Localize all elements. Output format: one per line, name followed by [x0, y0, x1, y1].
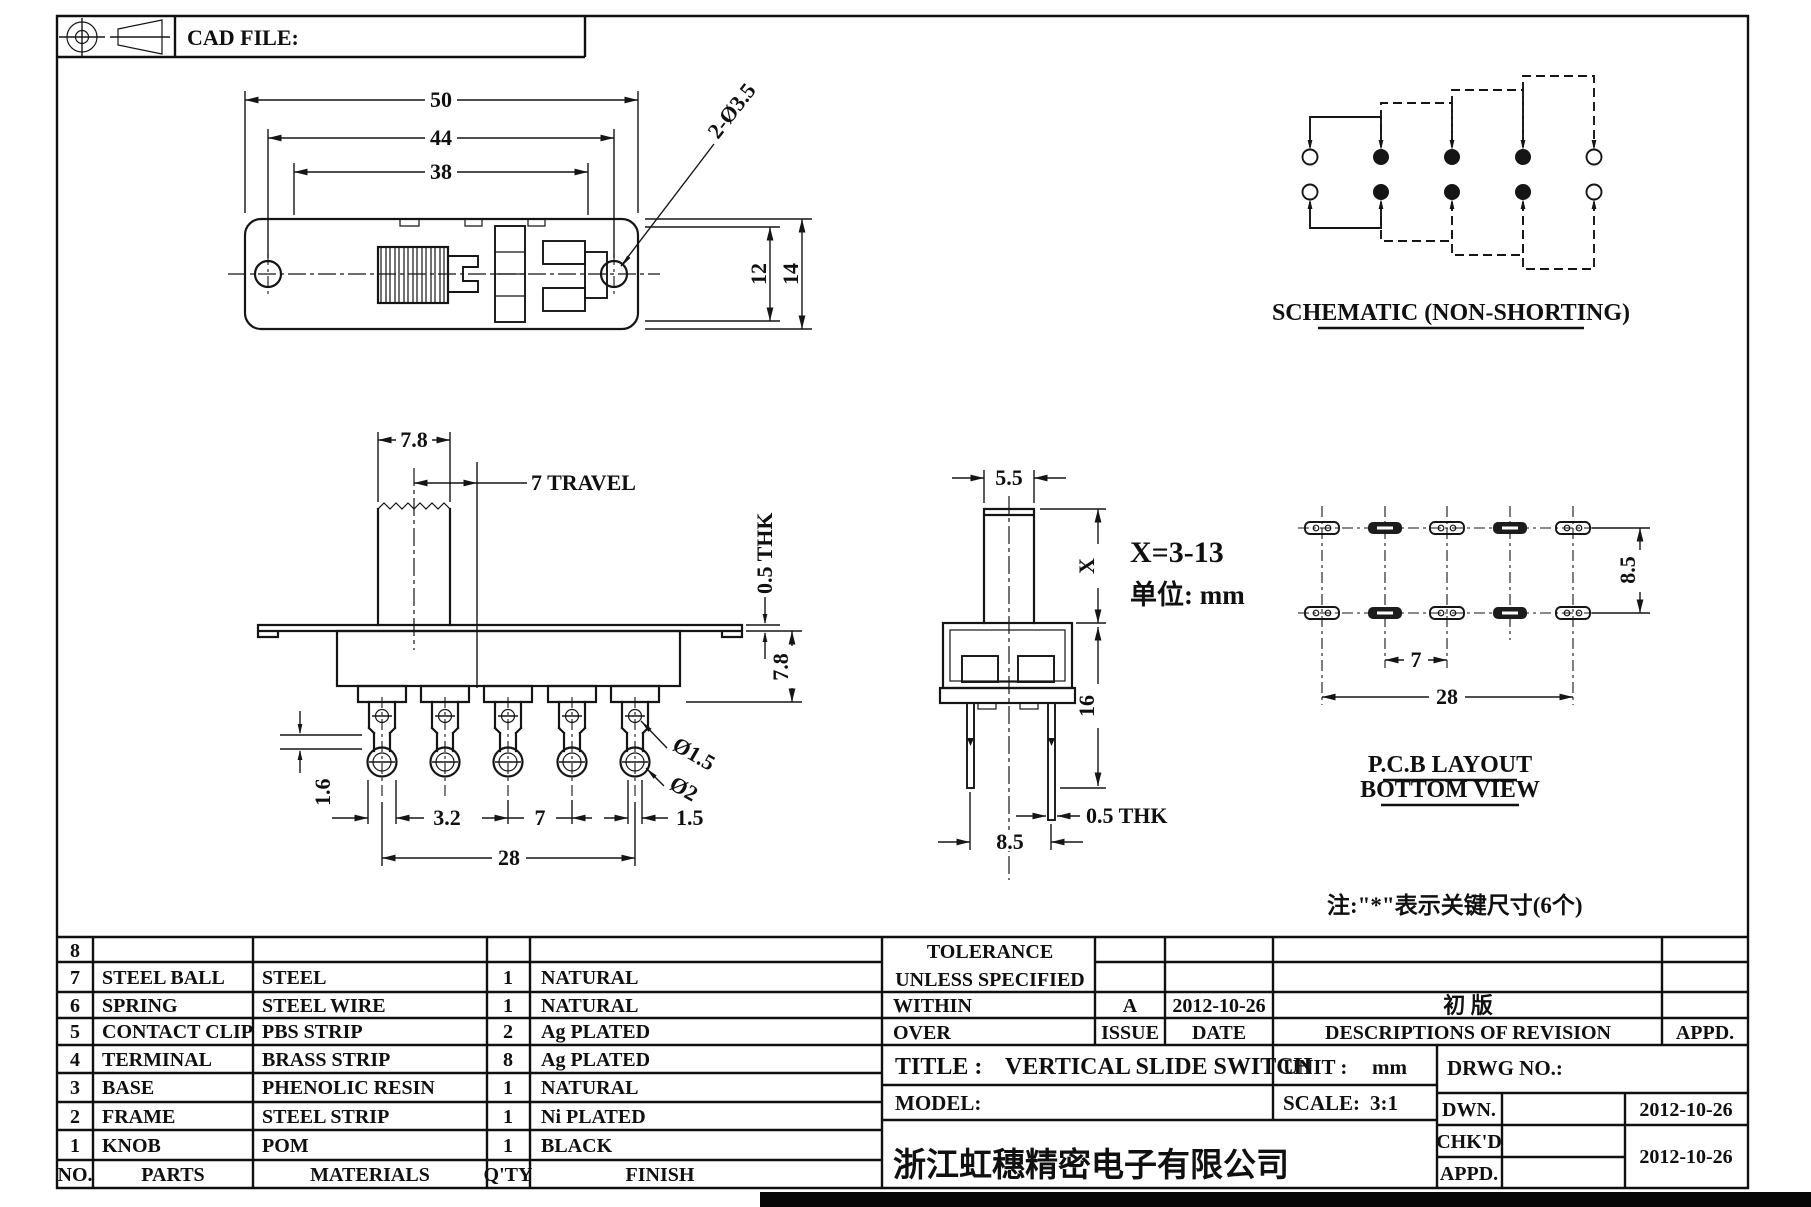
dim-hole-big: Ø2 — [666, 771, 703, 807]
drawing-canvas: CAD FILE: 50 44 38 2-Ø3.5 12 14 SCH — [0, 0, 1811, 1207]
dim-8-5: 8.5 — [996, 829, 1024, 854]
cad-file-label: CAD FILE: — [187, 25, 299, 50]
row-no: 4 — [70, 1049, 80, 1071]
chkd-appd-date: 2012-10-26 — [1639, 1146, 1732, 1168]
row-part: CONTACT CLIP — [102, 1021, 253, 1043]
row-finish: BLACK — [541, 1135, 613, 1157]
top-view: 50 44 38 2-Ø3.5 12 14 — [228, 78, 812, 329]
row-material: STEEL — [262, 967, 326, 989]
row-material: STEEL STRIP — [262, 1106, 389, 1128]
dim-5-5: 5.5 — [995, 465, 1023, 490]
row-finish: Ag PLATED — [541, 1021, 650, 1043]
side-view: 5.5 X X=3-13 单位: mm 16 0.5 THK 8.5 — [938, 465, 1245, 880]
appd-column-header: APPD. — [1676, 1022, 1734, 1044]
row-no: 2 — [70, 1106, 80, 1128]
dim-1-6: 1.6 — [310, 779, 335, 807]
row-no: 3 — [70, 1077, 80, 1099]
dim-3-2: 3.2 — [433, 805, 461, 830]
within-label: WITHIN — [893, 995, 972, 1017]
dim-14: 14 — [778, 263, 803, 285]
dim-frame-thk: 0.5 THK — [752, 512, 777, 594]
dim-7: 7 — [535, 805, 546, 830]
row-material: POM — [262, 1135, 309, 1157]
dim-1-5: 1.5 — [676, 805, 704, 830]
appd-label: APPD. — [1440, 1163, 1498, 1185]
row-material: PBS STRIP — [262, 1021, 363, 1043]
row-qty: 2 — [503, 1021, 513, 1043]
row-part: FRAME — [102, 1106, 175, 1128]
table-row: 6 SPRING STEEL WIRE 1 NATURAL — [70, 995, 638, 1017]
revision-header: DESCRIPTIONS OF REVISION — [1325, 1022, 1612, 1044]
row-part: TERMINAL — [102, 1049, 212, 1071]
dim-hole-small: Ø1.5 — [669, 732, 720, 776]
dwn-date: 2012-10-26 — [1639, 1099, 1732, 1121]
tolerance-line2: UNLESS SPECIFIED — [895, 969, 1085, 991]
row-part: BASE — [102, 1077, 154, 1099]
row-material: STEEL WIRE — [262, 995, 386, 1017]
chkd-label: CHK'D — [1436, 1131, 1502, 1153]
row-no: 5 — [70, 1021, 80, 1043]
row-no: 8 — [70, 940, 80, 962]
pcb-dim-7: 7 — [1411, 647, 1422, 672]
dim-50: 50 — [430, 87, 452, 112]
table-row: 8 — [70, 940, 80, 962]
table-row: 5 CONTACT CLIP PBS STRIP 2 Ag PLATED — [70, 1021, 650, 1043]
bottom-scan-bar — [760, 1192, 1811, 1207]
pcb-layout-view: 8.5 7 28 P.C.B LAYOUT BOTTOM VIEW — [1298, 506, 1650, 805]
dim-mounting-holes: 2-Ø3.5 — [702, 78, 760, 143]
row-finish: Ag PLATED — [541, 1049, 650, 1071]
header-no: NO. — [58, 1164, 93, 1186]
table-row: 3 BASE PHENOLIC RESIN 1 NATURAL — [70, 1077, 638, 1099]
row-qty: 1 — [503, 1077, 513, 1099]
issue-date-value: 2012-10-26 — [1172, 995, 1265, 1017]
dim-body-height: 7.8 — [768, 653, 793, 681]
row-no: 1 — [70, 1135, 80, 1157]
row-material: BRASS STRIP — [262, 1049, 390, 1071]
x-range-label: X=3-13 — [1130, 536, 1224, 569]
dim-pin-thk: 0.5 THK — [1086, 803, 1168, 828]
table-row: 7 STEEL BALL STEEL 1 NATURAL — [70, 967, 638, 989]
dwn-label: DWN. — [1442, 1099, 1496, 1121]
scale-label: SCALE: — [1283, 1091, 1360, 1115]
dim-12: 12 — [746, 263, 771, 285]
pcb-dim-8-5: 8.5 — [1615, 556, 1640, 584]
drwg-no-label: DRWG NO.: — [1447, 1056, 1563, 1080]
row-finish: Ni PLATED — [541, 1106, 646, 1128]
title-value: VERTICAL SLIDE SWITCH — [1005, 1054, 1313, 1080]
header-qty: Q'TY — [484, 1164, 533, 1186]
row-part: SPRING — [102, 995, 178, 1017]
title-label: TITLE : — [895, 1054, 982, 1080]
title-block: TOLERANCE UNLESS SPECIFIED WITHIN OVER A… — [893, 941, 1734, 1185]
unit-label: UNIT : — [1283, 1055, 1347, 1079]
header-finish: FINISH — [626, 1164, 695, 1186]
scale-value: 3:1 — [1370, 1091, 1398, 1115]
row-no: 6 — [70, 995, 80, 1017]
dim-16: 16 — [1074, 695, 1099, 717]
row-part: KNOB — [102, 1135, 161, 1157]
row-qty: 8 — [503, 1049, 513, 1071]
schematic-view: SCHEMATIC (NON-SHORTING) — [1272, 76, 1630, 328]
dim-travel: 7 TRAVEL — [531, 470, 636, 495]
row-finish: NATURAL — [541, 995, 638, 1017]
dim-knob-width: 7.8 — [400, 427, 428, 452]
row-no: 7 — [70, 967, 80, 989]
row-qty: 1 — [503, 995, 513, 1017]
model-label: MODEL: — [895, 1091, 981, 1115]
key-dimension-note: 注:"*"表示关键尺寸(6个) — [1327, 892, 1583, 918]
parts-table: 8 7 STEEL BALL STEEL 1 NATURAL 6 SPRING … — [58, 940, 695, 1186]
company-name: 浙江虹穗精密电子有限公司 — [893, 1146, 1289, 1183]
dim-28: 28 — [498, 845, 520, 870]
projection-symbol-icon — [59, 18, 170, 56]
table-header-row: NO. PARTS MATERIALS Q'TY FINISH — [58, 1164, 695, 1186]
over-label: OVER — [893, 1022, 951, 1044]
pcb-caption-line2: BOTTOM VIEW — [1360, 777, 1540, 803]
table-row: 4 TERMINAL BRASS STRIP 8 Ag PLATED — [70, 1049, 650, 1071]
row-part: STEEL BALL — [102, 967, 225, 989]
front-view: 7.8 7 TRAVEL 0.5 THK 7.8 1.6 3.2 7 1.5 2… — [258, 427, 802, 870]
drawing-sheet: CAD FILE: 50 44 38 2-Ø3.5 12 14 SCH — [0, 0, 1811, 1207]
row-finish: NATURAL — [541, 1077, 638, 1099]
row-material: PHENOLIC RESIN — [262, 1077, 435, 1099]
pcb-dim-28: 28 — [1436, 684, 1458, 709]
revision-description-value: 初 版 — [1443, 993, 1493, 1018]
pcb-caption-line1: P.C.B LAYOUT — [1368, 752, 1532, 778]
dim-x: X — [1074, 558, 1099, 574]
row-qty: 1 — [503, 967, 513, 989]
issue-value: A — [1123, 995, 1138, 1017]
date-label: DATE — [1192, 1022, 1246, 1044]
unit-value: mm — [1372, 1055, 1407, 1079]
unit-note-label: 单位: mm — [1130, 579, 1245, 610]
header-materials: MATERIALS — [310, 1164, 430, 1186]
row-finish: NATURAL — [541, 967, 638, 989]
tolerance-line1: TOLERANCE — [927, 941, 1053, 963]
dim-38: 38 — [430, 159, 452, 184]
schematic-caption: SCHEMATIC (NON-SHORTING) — [1272, 300, 1630, 326]
header-parts: PARTS — [141, 1164, 204, 1186]
issue-label: ISSUE — [1101, 1022, 1159, 1044]
row-qty: 1 — [503, 1135, 513, 1157]
row-qty: 1 — [503, 1106, 513, 1128]
dim-44: 44 — [430, 125, 452, 150]
table-row: 2 FRAME STEEL STRIP 1 Ni PLATED — [70, 1106, 646, 1128]
